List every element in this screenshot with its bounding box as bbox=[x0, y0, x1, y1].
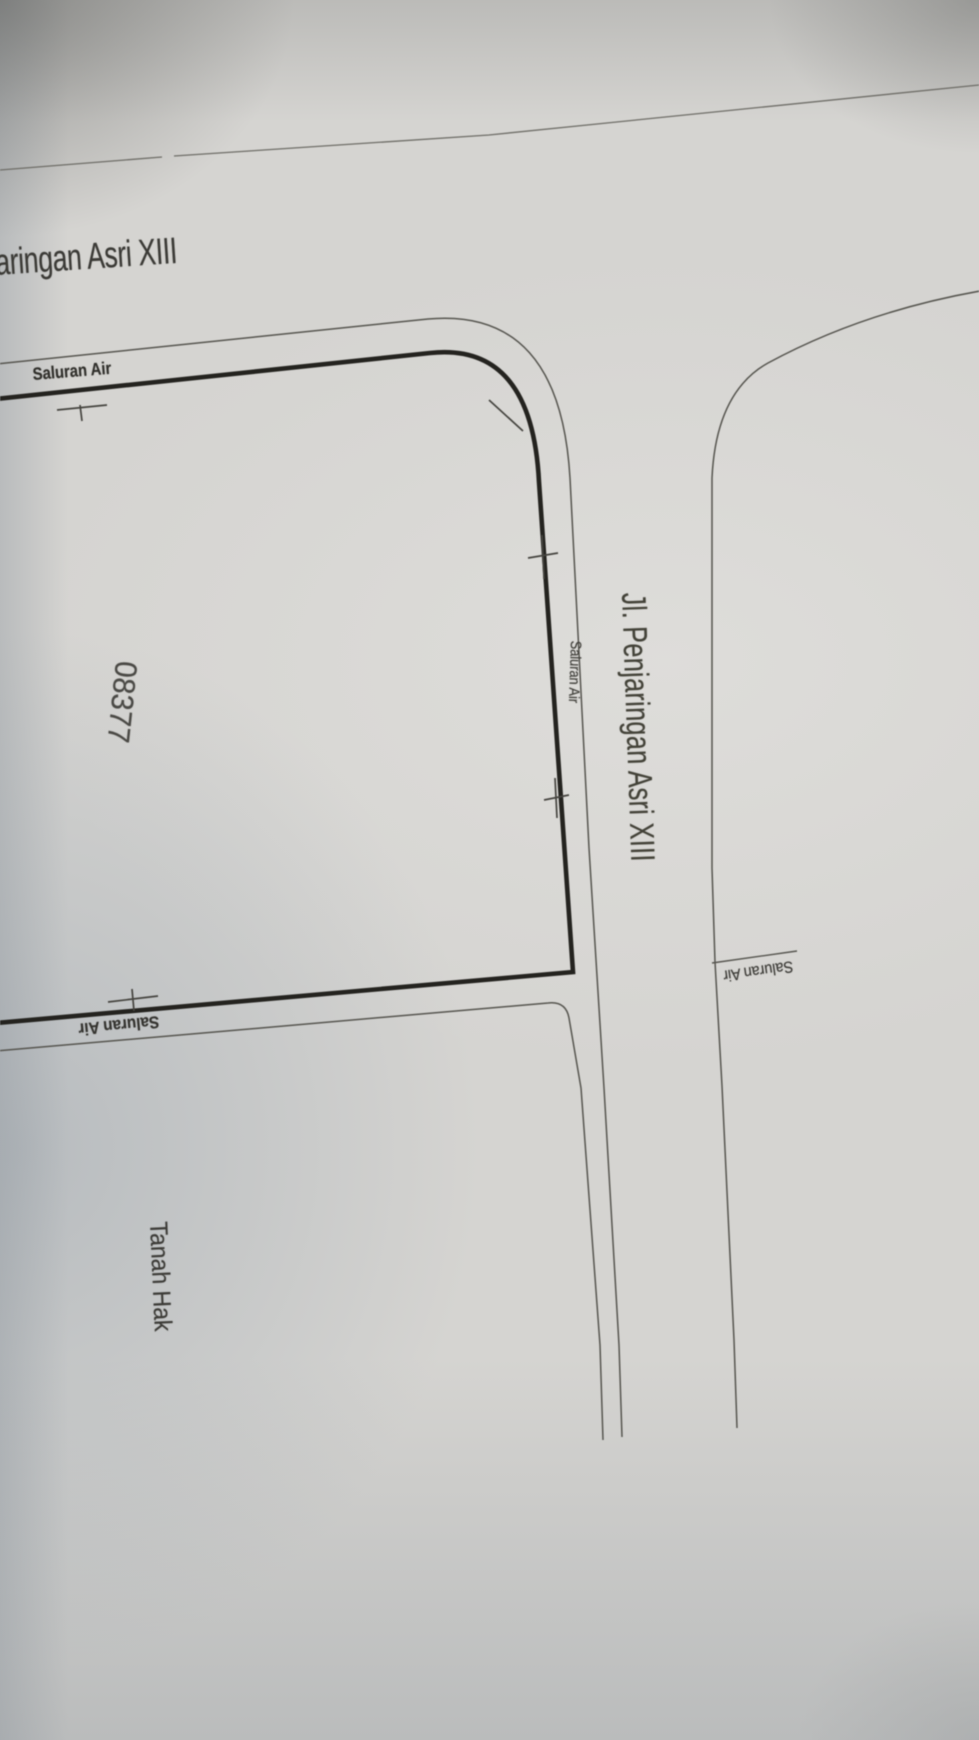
map-drawing: aringan Asri XIII Saluran Air 08377 Salu… bbox=[0, 0, 979, 1740]
survey-tick-east-lower bbox=[544, 778, 569, 818]
survey-map-photo: aringan Asri XIII Saluran Air 08377 Salu… bbox=[0, 0, 979, 1740]
survey-tick-corner-curve bbox=[489, 400, 523, 431]
parcel-number: 08377 bbox=[103, 660, 142, 745]
drain-line-south bbox=[0, 1003, 603, 1440]
land-status-label: Tanah Hak bbox=[145, 1221, 175, 1332]
drain-label-east: Saluran Air bbox=[566, 640, 583, 703]
survey-tick-top-left bbox=[57, 405, 107, 421]
parcel-boundary-line bbox=[0, 352, 573, 1023]
drain-line-north-east bbox=[0, 318, 622, 1437]
survey-tick-east-upper bbox=[528, 535, 558, 579]
neighbor-boundary-line bbox=[0, 85, 979, 170]
road-east-edge-line bbox=[712, 291, 979, 1428]
road-name-label: Jl. Penjaringan Asri XIII bbox=[616, 592, 659, 862]
